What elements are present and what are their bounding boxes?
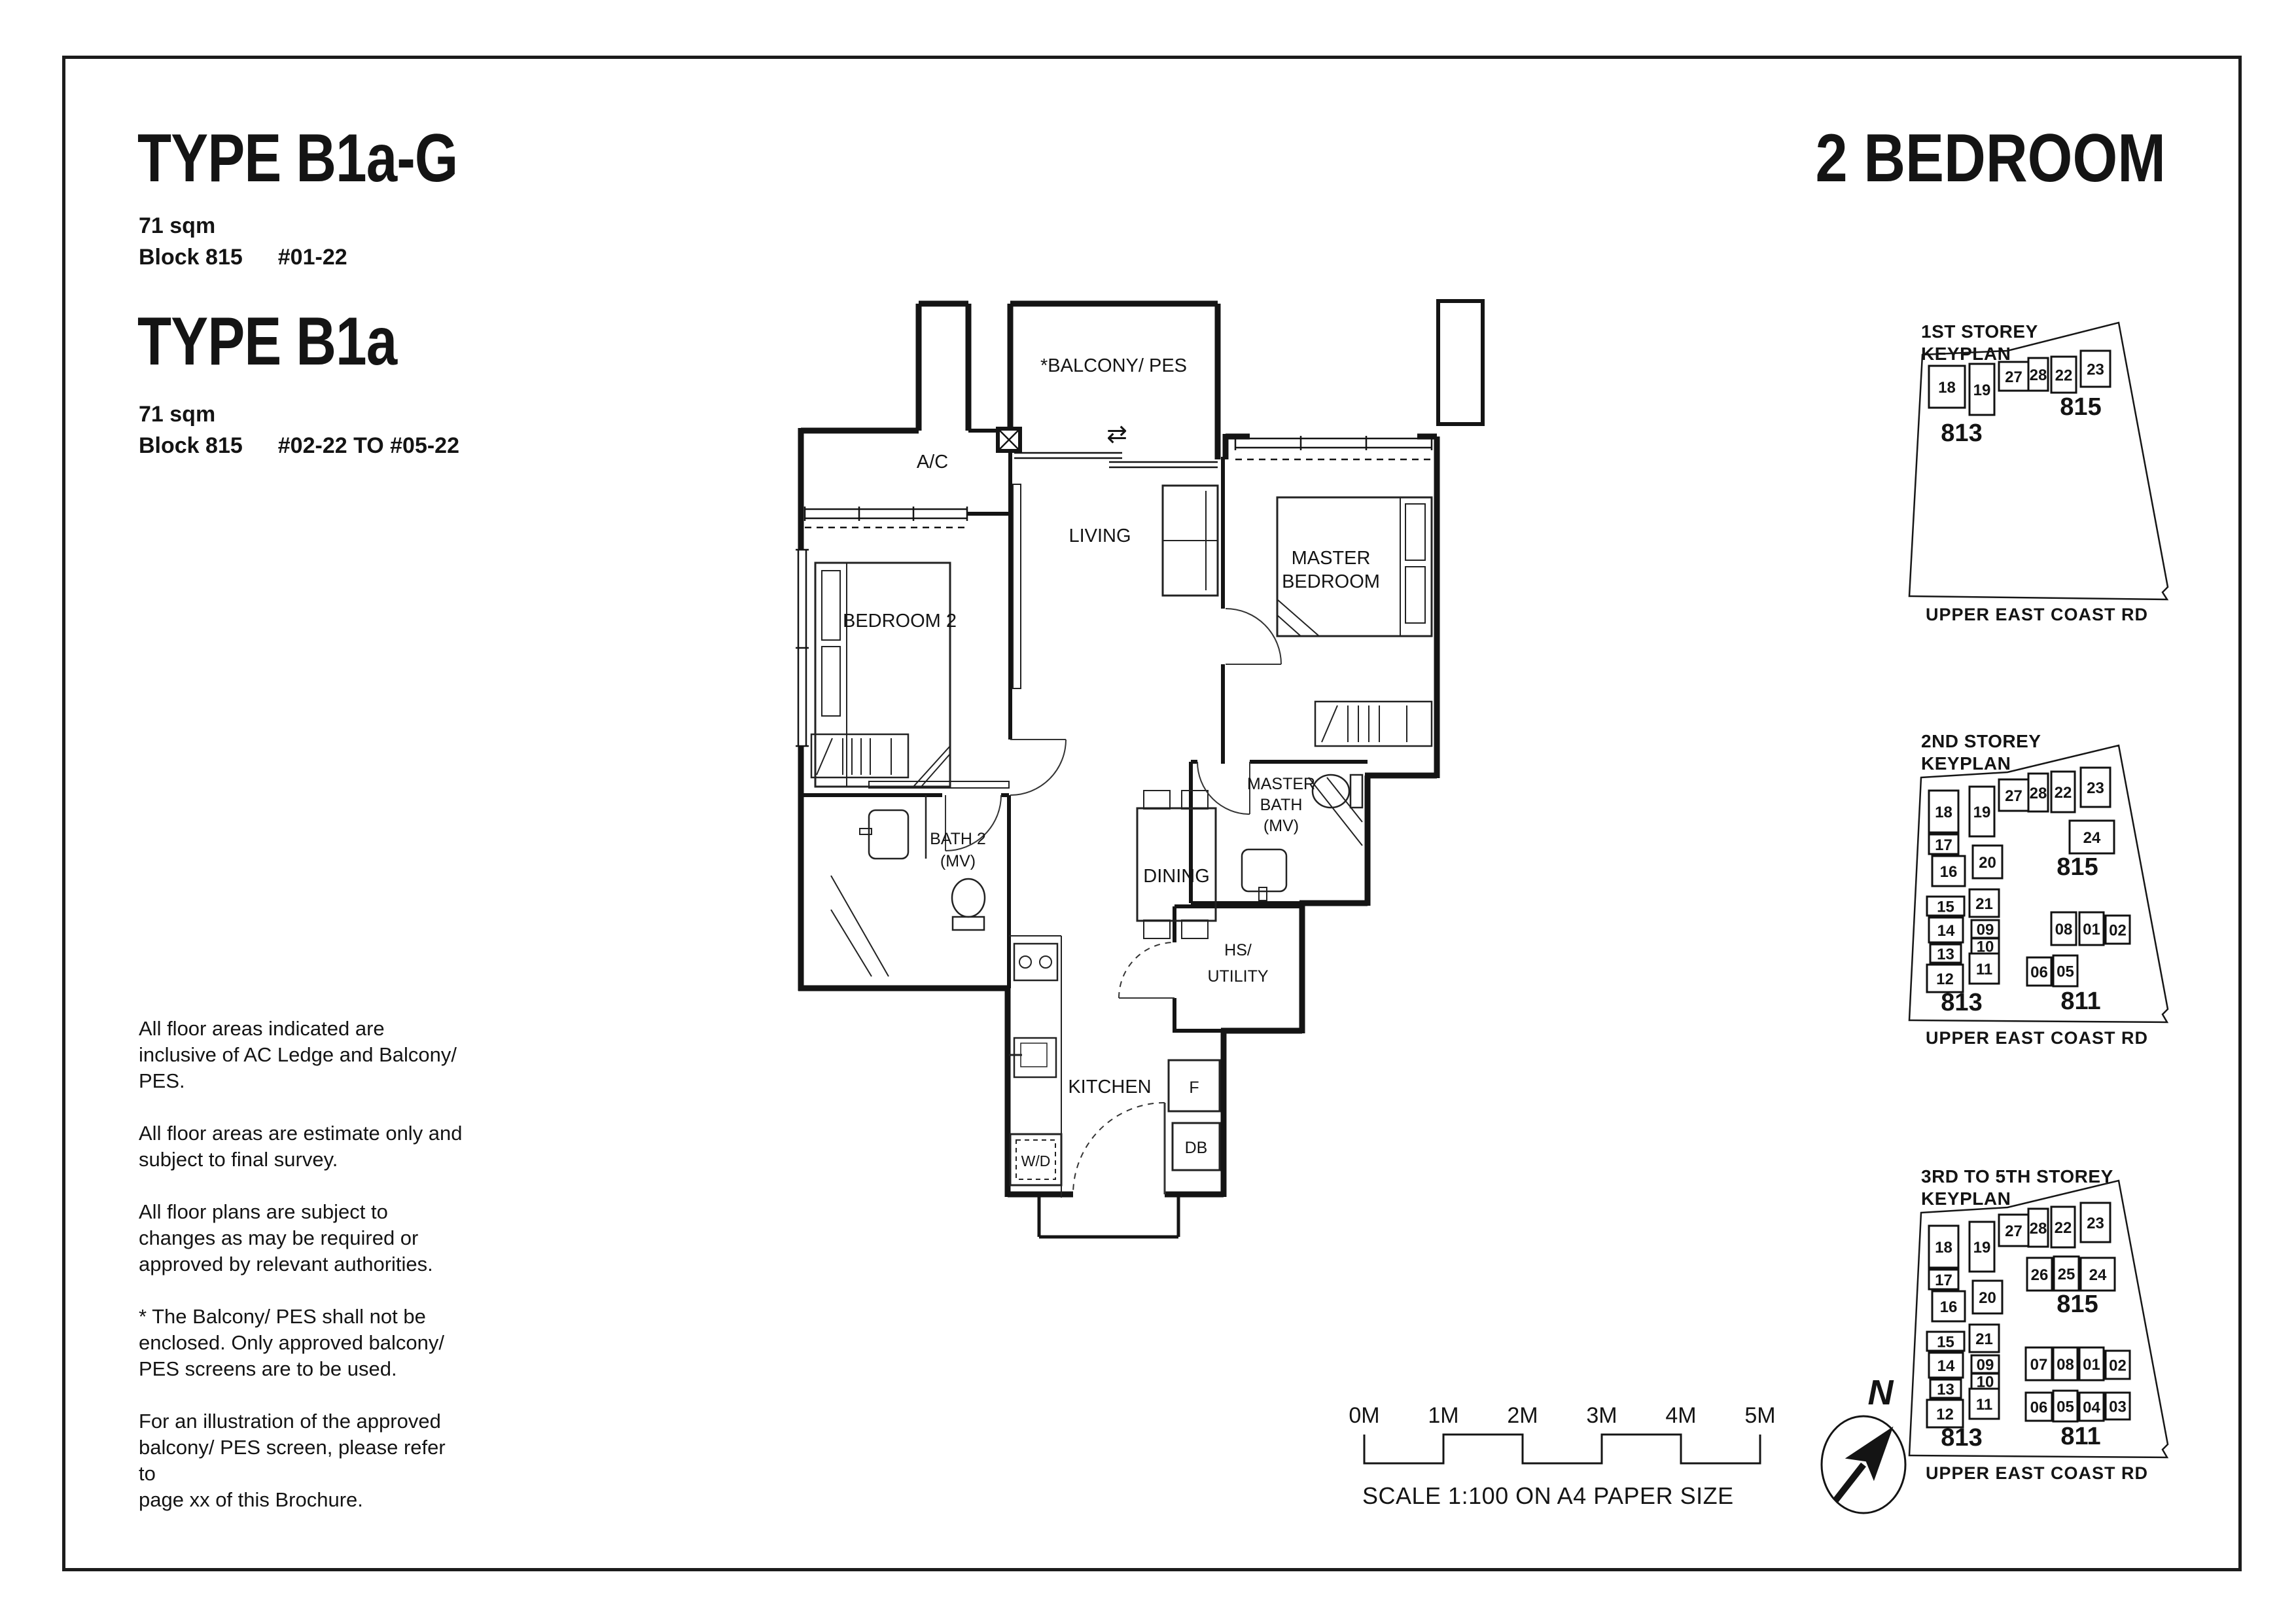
unit-number: 22	[2055, 784, 2072, 802]
structural-column-icon	[998, 429, 1020, 451]
unit-number: 23	[2087, 361, 2104, 379]
label-wd: W/D	[1021, 1152, 1051, 1169]
block-number: 811	[2060, 988, 2100, 1015]
unit-number: 11	[1976, 1396, 1992, 1414]
unit-number: 19	[1973, 382, 1991, 399]
unit-number: 25	[2058, 1266, 2075, 1283]
unit-number: 23	[2087, 1215, 2104, 1232]
unit-number: 27	[2005, 787, 2022, 805]
block-number: 815	[2060, 393, 2101, 421]
label-ac: A/C	[917, 452, 948, 473]
scale-tick: 4M	[1665, 1403, 1696, 1428]
keyplan-3rd-5th-storey: 3RD TO 5TH STOREYKEYPLAN1817161920272822…	[1896, 1163, 2184, 1497]
unit-number: 20	[1979, 854, 1996, 872]
keyplan-title: 1ST STOREY	[1921, 321, 2038, 342]
unit-number: 09	[1977, 1357, 1994, 1374]
stack-label: #02-22 TO #05-22	[278, 433, 459, 458]
type-block-2: Block 815#02-22 TO #05-22	[139, 433, 459, 459]
type-title-2: TYPE B1a	[137, 308, 397, 376]
type-area-1: 71 sqm	[139, 213, 215, 239]
unit-number: 19	[1973, 804, 1991, 821]
wardrobe-bedroom2	[811, 734, 1009, 788]
unit-number: 20	[1979, 1289, 1996, 1307]
type-block-1: Block 815#01-22	[139, 245, 347, 270]
type-title-1: TYPE B1a-G	[137, 124, 457, 192]
unit-number: 18	[1935, 804, 1952, 821]
note: * The Balcony/ PES shall not be enclosed…	[139, 1304, 466, 1382]
block-number: 811	[2060, 1423, 2100, 1450]
wardrobe-master	[1315, 702, 1432, 746]
scale-tick: 2M	[1507, 1403, 1538, 1428]
unit-number: 16	[1940, 863, 1958, 881]
unit-number: 28	[2030, 785, 2047, 802]
scale-tick: 1M	[1428, 1403, 1458, 1428]
label-hs: HS/	[1224, 941, 1252, 959]
unit-number: 27	[2005, 368, 2022, 386]
north-label: N	[1868, 1373, 1894, 1412]
label-bath2-mv: (MV)	[940, 852, 976, 870]
unit-number: 15	[1937, 1334, 1954, 1351]
label-master-bedroom: MASTER	[1292, 548, 1371, 569]
unit-number: 17	[1935, 836, 1952, 854]
sliding-door-icon: ⇄	[1106, 421, 1127, 448]
unit-number: 04	[2083, 1399, 2100, 1417]
unit-number: 21	[1975, 1330, 1993, 1348]
note: All floor areas indicated are inclusive …	[139, 1016, 466, 1094]
label-bedroom2: BEDROOM 2	[843, 611, 957, 632]
utility-door-arc	[1119, 942, 1174, 998]
type-area-2: 71 sqm	[139, 402, 215, 427]
scale-tick: 3M	[1586, 1403, 1617, 1428]
unit-number: 12	[1936, 971, 1954, 988]
unit-number: 15	[1937, 899, 1954, 916]
road-label: UPPER EAST COAST RD	[1926, 605, 2148, 624]
label-kitchen: KITCHEN	[1068, 1077, 1151, 1097]
block-label: Block 815	[139, 245, 243, 270]
ac-ledge-column	[1438, 301, 1483, 424]
floor-plan: *BALCONY/ PES ⇄ A/C LIVING MASTER BEDROO…	[792, 288, 1498, 1348]
unit-number: 28	[2030, 366, 2047, 384]
block-number: 813	[1941, 1424, 1982, 1452]
bath2-fixtures	[831, 795, 985, 976]
disclaimer-notes: All floor areas indicated are inclusive …	[139, 1016, 466, 1539]
unit-number: 24	[2083, 829, 2101, 847]
keyplan-title: 3RD TO 5TH STOREY	[1921, 1166, 2113, 1186]
unit-number: 13	[1937, 1381, 1954, 1399]
unit-number: 22	[2055, 1219, 2072, 1237]
porch-walls	[1039, 1194, 1178, 1237]
unit-number: 05	[2057, 1399, 2074, 1416]
unit-number: 06	[2030, 964, 2048, 982]
label-master-bath: MASTER	[1247, 775, 1315, 793]
note: All floor plans are subject to changes a…	[139, 1199, 466, 1277]
block-number: 813	[1941, 419, 1982, 447]
keyplan-title: KEYPLAN	[1921, 753, 2011, 774]
unit-number: 24	[2089, 1266, 2107, 1284]
balcony-sliding-track	[1014, 453, 1218, 467]
unit-number: 23	[2087, 779, 2104, 797]
label-master-bath2: BATH	[1260, 796, 1303, 814]
scale-caption: SCALE 1:100 ON A4 PAPER SIZE	[1362, 1482, 1734, 1509]
scale-bar: 0M 1M 2M 3M 4M 5M SCALE 1:100 ON A4 PAPE…	[1348, 1400, 1793, 1515]
label-master-bedroom2: BEDROOM	[1282, 571, 1380, 592]
unit-number: 06	[2030, 1399, 2048, 1417]
label-dining: DINING	[1143, 866, 1210, 887]
scale-bar-line	[1364, 1435, 1760, 1463]
entry-door-arc	[1073, 1103, 1165, 1194]
unit-number: 17	[1935, 1272, 1952, 1289]
label-balcony: *BALCONY/ PES	[1040, 355, 1187, 376]
label-utility: UTILITY	[1207, 967, 1268, 986]
unit-number: 26	[2031, 1266, 2049, 1284]
unit-number: 01	[2083, 921, 2100, 938]
unit-number: 21	[1975, 895, 1993, 913]
block-number: 815	[2057, 1291, 2098, 1318]
master-bath-door	[1197, 762, 1250, 814]
unit-number: 16	[1940, 1298, 1958, 1316]
road-label: UPPER EAST COAST RD	[1926, 1028, 2148, 1048]
unit-number: 03	[2109, 1399, 2127, 1416]
tv-console	[1013, 484, 1021, 688]
unit-number: 05	[2057, 963, 2074, 981]
unit-number: 02	[2109, 1357, 2127, 1375]
keyplan-1st-storey: 1ST STOREYKEYPLAN181927282223813815UPPER…	[1896, 318, 2184, 645]
unit-number: 11	[1976, 961, 1992, 978]
unit-number: 18	[1938, 379, 1956, 397]
label-master-bath3: (MV)	[1263, 817, 1299, 835]
block-label: Block 815	[139, 433, 243, 458]
unit-number: 27	[2005, 1222, 2022, 1240]
note: All floor areas are estimate only and su…	[139, 1120, 466, 1173]
unit-number: 13	[1937, 946, 1954, 963]
keyplan-title: KEYPLAN	[1921, 1188, 2011, 1209]
unit-number: 02	[2109, 922, 2127, 940]
block-number: 813	[1941, 989, 1982, 1016]
block-number: 815	[2057, 853, 2098, 881]
keyplan-2nd-storey: 2ND STOREYKEYPLAN18171619202728222324152…	[1896, 728, 2184, 1061]
unit-number: 08	[2057, 1356, 2074, 1374]
unit-number: 12	[1936, 1406, 1954, 1423]
bedroom2-door	[1010, 740, 1066, 795]
unit-number: 08	[2055, 921, 2073, 938]
label-bath2: BATH 2	[930, 830, 986, 848]
unit-number: 14	[1937, 1357, 1955, 1375]
label-db: DB	[1185, 1139, 1208, 1157]
master-bedroom-door	[1226, 609, 1281, 664]
label-living: LIVING	[1069, 526, 1131, 546]
partition-walls	[801, 301, 1483, 1033]
category-title: 2 BEDROOM	[1816, 124, 2166, 192]
unit-number: 28	[2030, 1220, 2047, 1238]
note: For an illustration of the approved balc…	[139, 1408, 466, 1513]
sofa	[1163, 486, 1218, 596]
unit-number: 19	[1973, 1239, 1991, 1257]
unit-number: 09	[1977, 921, 1994, 939]
unit-number: 18	[1935, 1239, 1952, 1257]
road-label: UPPER EAST COAST RD	[1926, 1463, 2148, 1483]
unit-number: 01	[2083, 1356, 2100, 1374]
bed2	[815, 563, 950, 787]
keyplan-title: 2ND STOREY	[1921, 731, 2041, 751]
label-fridge: F	[1189, 1079, 1199, 1097]
unit-number: 14	[1937, 922, 1955, 940]
unit-number: 22	[2055, 367, 2073, 385]
stack-label: #01-22	[278, 245, 347, 270]
scale-tick: 0M	[1349, 1403, 1379, 1428]
scale-tick: 5M	[1744, 1403, 1775, 1428]
brochure-page: TYPE B1a-G 71 sqm Block 815#01-22 TYPE B…	[0, 0, 2296, 1623]
unit-number: 07	[2030, 1356, 2048, 1374]
master-bath-fixtures	[1242, 775, 1362, 901]
